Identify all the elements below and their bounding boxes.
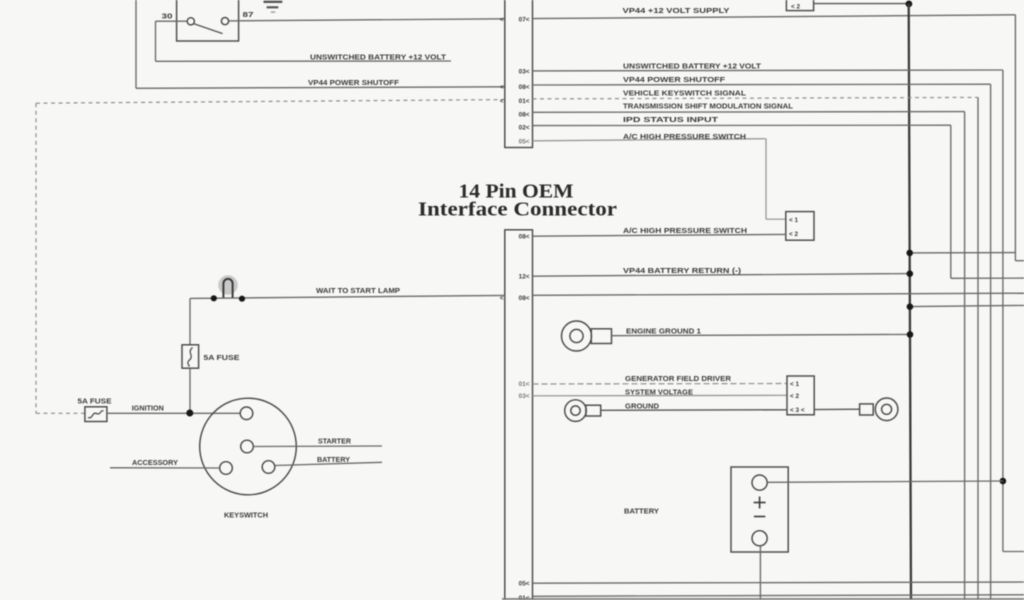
svg-text:30: 30 [162,14,173,21]
svg-text:02<: 02< [519,125,530,132]
svg-text:VP44 POWER SHUTOFF: VP44 POWER SHUTOFF [308,80,400,87]
svg-text:< 3 <: < 3 < [790,407,805,414]
svg-text:05<: 05< [519,581,530,588]
svg-text:< 2: < 2 [789,231,799,238]
svg-text:05<: 05< [519,138,530,145]
svg-text:ENGINE GROUND 1: ENGINE GROUND 1 [626,328,701,335]
svg-text:08<: 08< [519,111,530,118]
svg-text:KEYSWITCH: KEYSWITCH [224,513,268,520]
svg-text:VP44 BATTERY RETURN (-): VP44 BATTERY RETURN (-) [623,268,741,275]
svg-text:UNSWITCHED BATTERY +12 VOLT: UNSWITCHED BATTERY +12 VOLT [623,64,762,71]
svg-text:03<: 03< [519,69,530,76]
svg-text:<: < [500,16,504,23]
svg-text:IGNITION: IGNITION [132,405,164,412]
svg-text:BATTERY: BATTERY [624,508,659,515]
svg-text:12<: 12< [519,274,530,281]
svg-text:IPD STATUS INPUT: IPD STATUS INPUT [623,117,719,124]
svg-text:A/C HIGH PRESSURE SWITCH: A/C HIGH PRESSURE SWITCH [623,228,747,235]
svg-text:<: < [500,84,504,91]
svg-text:TRANSMISSION SHIFT MODULATION: TRANSMISSION SHIFT MODULATION SIGNAL [623,104,794,111]
svg-text:03<: 03< [519,393,530,400]
svg-text:VP44 +12 VOLT SUPPLY: VP44 +12 VOLT SUPPLY [623,8,730,15]
svg-text:< 2: < 2 [790,393,800,400]
svg-text:UNSWITCHED BATTERY +12 VOLT: UNSWITCHED BATTERY +12 VOLT [310,54,447,61]
svg-text:08<: 08< [519,84,530,91]
svg-text:87: 87 [243,12,254,19]
svg-text:01<: 01< [519,381,530,388]
svg-text:ACCESSORY: ACCESSORY [132,460,178,467]
svg-text:STARTER: STARTER [318,438,351,445]
svg-text:07<: 07< [519,17,530,24]
svg-text:5A FUSE: 5A FUSE [204,355,240,362]
svg-text:5A FUSE: 5A FUSE [78,399,112,406]
svg-text:< 1: < 1 [789,217,799,224]
svg-text:08<: 08< [519,234,530,241]
svg-text:BATTERY: BATTERY [317,457,350,464]
svg-text:<: < [500,98,504,105]
svg-text:GROUND: GROUND [625,403,659,410]
svg-text:SYSTEM VOLTAGE: SYSTEM VOLTAGE [625,389,693,396]
svg-text:WAIT TO START LAMP: WAIT TO START LAMP [316,288,400,295]
svg-text:A/C HIGH PRESSURE SWITCH: A/C HIGH PRESSURE SWITCH [623,134,746,141]
svg-text:< 2: < 2 [791,4,801,11]
svg-text:Interface Connector: Interface Connector [418,200,617,221]
svg-text:08<: 08< [519,295,530,302]
svg-text:VP44 POWER SHUTOFF: VP44 POWER SHUTOFF [623,77,726,84]
svg-text:GENERATOR FIELD DRIVER: GENERATOR FIELD DRIVER [625,376,731,383]
svg-text:01<: 01< [519,98,530,105]
svg-text:< 1: < 1 [790,381,800,388]
svg-text:VEHICLE KEYSWITCH SIGNAL: VEHICLE KEYSWITCH SIGNAL [623,90,747,97]
